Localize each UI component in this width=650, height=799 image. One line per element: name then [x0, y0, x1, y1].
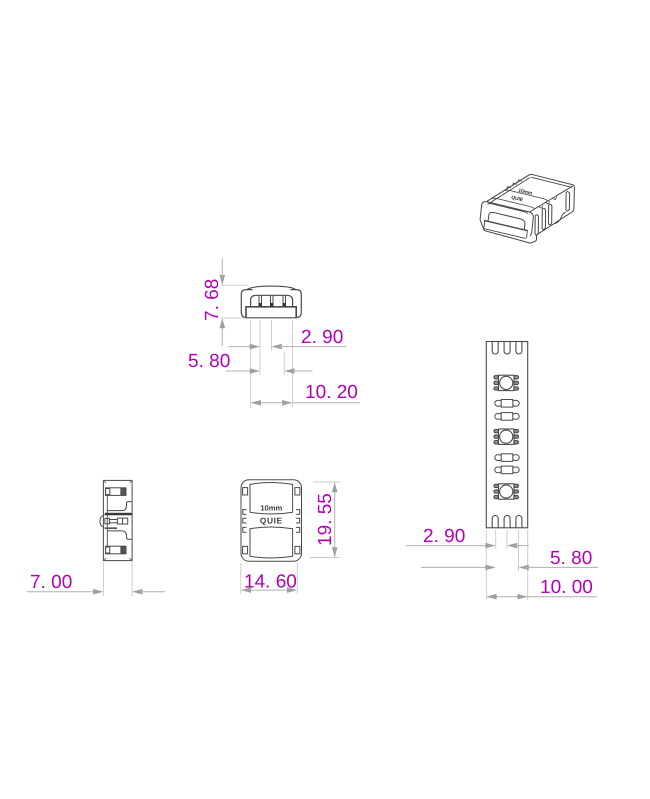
svg-text:7. 68: 7. 68	[202, 279, 223, 321]
svg-text:19. 55: 19. 55	[315, 493, 336, 546]
svg-text:14. 60: 14. 60	[244, 572, 297, 593]
svg-text:10. 00: 10. 00	[540, 577, 593, 598]
svg-text:7. 00: 7. 00	[30, 572, 72, 593]
svg-text:10. 20: 10. 20	[305, 382, 358, 403]
svg-text:5. 80: 5. 80	[550, 548, 592, 569]
svg-text:10mm: 10mm	[260, 504, 282, 513]
svg-text:5. 80: 5. 80	[188, 351, 230, 372]
svg-text:2. 90: 2. 90	[423, 526, 465, 547]
svg-text:QUIE: QUIE	[260, 516, 283, 526]
svg-text:2. 90: 2. 90	[301, 327, 343, 348]
